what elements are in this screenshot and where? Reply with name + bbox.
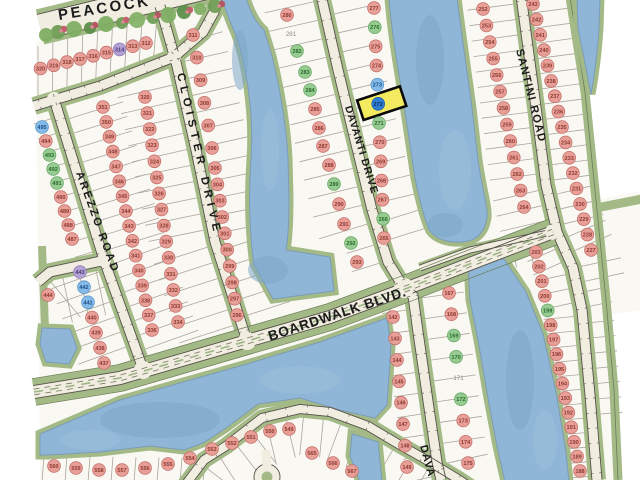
svg-text:230: 230 [575,202,584,208]
svg-text:290: 290 [334,202,343,208]
svg-text:325: 325 [152,175,161,181]
svg-text:243: 243 [528,2,537,8]
svg-text:196: 196 [552,352,561,358]
svg-text:308: 308 [200,101,209,107]
svg-text:310: 310 [192,56,201,62]
svg-text:438: 438 [95,346,104,352]
svg-text:274: 274 [372,64,382,70]
svg-text:297: 297 [230,297,239,303]
svg-text:551: 551 [246,435,255,441]
svg-text:273: 273 [373,83,382,89]
svg-text:197: 197 [549,338,558,344]
svg-text:312: 312 [141,41,150,47]
svg-text:239: 239 [543,64,552,70]
svg-text:269: 269 [376,159,385,165]
svg-text:493: 493 [45,153,54,159]
svg-text:440: 440 [87,316,96,322]
svg-text:264: 264 [519,205,529,211]
svg-text:172: 172 [456,397,465,403]
svg-text:254: 254 [485,40,495,46]
svg-text:444: 444 [43,293,53,299]
svg-text:228: 228 [583,233,592,239]
svg-text:148: 148 [400,444,409,450]
svg-text:560: 560 [49,464,58,470]
svg-text:565: 565 [307,451,316,457]
svg-text:257: 257 [495,90,504,96]
svg-text:276: 276 [370,25,379,31]
svg-text:240: 240 [539,48,548,54]
svg-text:194: 194 [558,381,568,387]
svg-text:327: 327 [157,208,166,214]
svg-text:275: 275 [371,44,380,50]
svg-text:168: 168 [447,312,456,318]
svg-text:281: 281 [286,31,297,38]
svg-text:345: 345 [118,194,127,200]
svg-text:552: 552 [227,441,236,447]
svg-text:169: 169 [449,334,458,340]
svg-text:558: 558 [94,468,103,474]
svg-text:291: 291 [339,222,348,228]
svg-text:559: 559 [71,466,80,472]
svg-text:282: 282 [292,49,301,55]
svg-text:271: 271 [374,121,383,127]
svg-text:489: 489 [60,209,69,215]
svg-text:491: 491 [52,181,61,187]
svg-text:324: 324 [150,159,160,165]
svg-text:171: 171 [453,375,464,382]
svg-text:266: 266 [379,217,388,223]
svg-text:144: 144 [392,358,402,364]
svg-text:309: 309 [196,78,205,84]
svg-text:494: 494 [41,139,51,145]
svg-text:200: 200 [540,294,549,300]
svg-text:170: 170 [451,355,460,361]
svg-text:277: 277 [369,6,378,12]
svg-text:188: 188 [575,469,584,475]
svg-text:175: 175 [463,461,472,467]
svg-text:334: 334 [173,320,183,326]
svg-text:195: 195 [555,367,564,373]
svg-text:333: 333 [171,304,180,310]
svg-text:142: 142 [388,315,397,321]
svg-text:233: 233 [565,156,574,162]
svg-text:280: 280 [282,13,291,19]
svg-text:439: 439 [91,331,100,337]
svg-text:299: 299 [225,264,234,270]
svg-text:346: 346 [115,179,124,185]
svg-text:556: 556 [140,466,149,472]
svg-text:192: 192 [564,411,573,417]
svg-text:262: 262 [513,172,522,178]
svg-text:314: 314 [115,47,125,53]
svg-text:189: 189 [572,454,581,460]
svg-text:490: 490 [56,195,65,201]
svg-text:145: 145 [394,379,403,385]
svg-text:340: 340 [134,269,143,275]
svg-text:190: 190 [569,440,578,446]
svg-text:286: 286 [314,126,323,132]
svg-text:259: 259 [502,123,511,129]
svg-text:321: 321 [143,111,152,117]
svg-text:350: 350 [102,120,111,126]
svg-text:198: 198 [546,323,555,329]
svg-text:342: 342 [128,239,137,245]
svg-text:236: 236 [554,110,563,116]
svg-text:287: 287 [318,144,327,150]
svg-text:261: 261 [509,156,518,162]
svg-text:332: 332 [169,288,178,294]
svg-text:256: 256 [492,73,501,79]
svg-text:549: 549 [284,427,293,433]
svg-text:227: 227 [586,248,595,254]
svg-text:143: 143 [390,336,399,342]
svg-text:284: 284 [305,88,315,94]
svg-text:193: 193 [561,396,570,402]
svg-text:283: 283 [300,70,309,76]
svg-text:253: 253 [482,24,491,30]
svg-text:174: 174 [461,440,471,446]
svg-text:443: 443 [75,270,84,276]
svg-text:270: 270 [375,140,384,146]
svg-text:229: 229 [579,217,588,223]
svg-text:149: 149 [402,465,411,471]
svg-text:344: 344 [121,209,131,215]
svg-text:263: 263 [516,189,525,195]
svg-text:323: 323 [147,143,156,149]
svg-text:338: 338 [141,298,150,304]
svg-text:241: 241 [536,33,545,39]
svg-text:238: 238 [546,79,555,85]
svg-text:285: 285 [310,107,319,113]
svg-text:488: 488 [64,223,73,229]
svg-text:555: 555 [163,462,172,468]
svg-text:265: 265 [379,236,388,242]
svg-text:320: 320 [140,95,149,101]
svg-text:566: 566 [328,461,337,467]
svg-text:235: 235 [557,125,566,131]
svg-text:343: 343 [124,224,133,230]
svg-text:304: 304 [213,182,223,188]
svg-text:232: 232 [568,171,577,177]
svg-text:442: 442 [79,285,88,291]
svg-text:347: 347 [111,165,120,171]
svg-text:351: 351 [98,105,107,111]
svg-text:199: 199 [543,308,552,314]
svg-text:173: 173 [459,419,468,425]
svg-text:437: 437 [99,361,108,367]
svg-text:306: 306 [207,146,216,152]
svg-text:495: 495 [37,125,46,131]
svg-text:348: 348 [108,150,117,156]
svg-text:329: 329 [162,240,171,246]
svg-text:567: 567 [347,469,356,475]
svg-text:147: 147 [398,422,407,428]
svg-text:305: 305 [210,166,219,172]
svg-text:557: 557 [117,468,126,474]
svg-text:319: 319 [49,63,58,69]
svg-text:311: 311 [188,33,197,39]
svg-text:191: 191 [567,425,576,431]
svg-text:487: 487 [67,237,76,243]
svg-text:318: 318 [62,60,71,66]
svg-text:258: 258 [499,106,508,112]
svg-text:293: 293 [352,260,361,266]
svg-text:292: 292 [346,241,355,247]
svg-text:339: 339 [138,283,147,289]
svg-text:255: 255 [489,57,498,63]
svg-text:242: 242 [532,17,541,23]
svg-text:272: 272 [374,102,383,108]
svg-text:202: 202 [534,265,543,271]
svg-text:260: 260 [506,139,515,145]
svg-text:320: 320 [36,67,45,73]
svg-text:326: 326 [154,191,163,197]
svg-text:316: 316 [89,54,98,60]
svg-text:167: 167 [444,291,453,297]
svg-text:317: 317 [75,57,84,63]
svg-text:289: 289 [329,182,338,188]
svg-text:328: 328 [159,224,168,230]
svg-text:288: 288 [324,163,333,169]
svg-text:296: 296 [232,313,241,319]
svg-text:349: 349 [105,135,114,141]
svg-text:237: 237 [550,94,559,100]
svg-text:337: 337 [144,313,153,319]
svg-text:231: 231 [572,187,581,193]
svg-text:331: 331 [166,272,175,278]
svg-text:307: 307 [204,123,213,129]
svg-text:322: 322 [145,127,154,133]
svg-text:313: 313 [128,44,137,50]
svg-text:341: 341 [131,254,140,260]
svg-text:550: 550 [265,429,274,435]
svg-text:554: 554 [185,456,195,462]
svg-text:492: 492 [49,167,58,173]
svg-text:203: 203 [531,250,540,256]
svg-text:267: 267 [378,198,387,204]
svg-text:441: 441 [83,300,92,306]
svg-text:315: 315 [102,51,111,57]
svg-text:300: 300 [223,248,232,254]
svg-text:252: 252 [478,7,487,13]
svg-text:234: 234 [561,140,571,146]
svg-text:553: 553 [207,447,216,453]
svg-text:146: 146 [396,401,405,407]
svg-text:330: 330 [164,256,173,262]
svg-text:201: 201 [537,279,546,285]
svg-text:336: 336 [147,328,156,334]
svg-text:298: 298 [227,280,236,286]
